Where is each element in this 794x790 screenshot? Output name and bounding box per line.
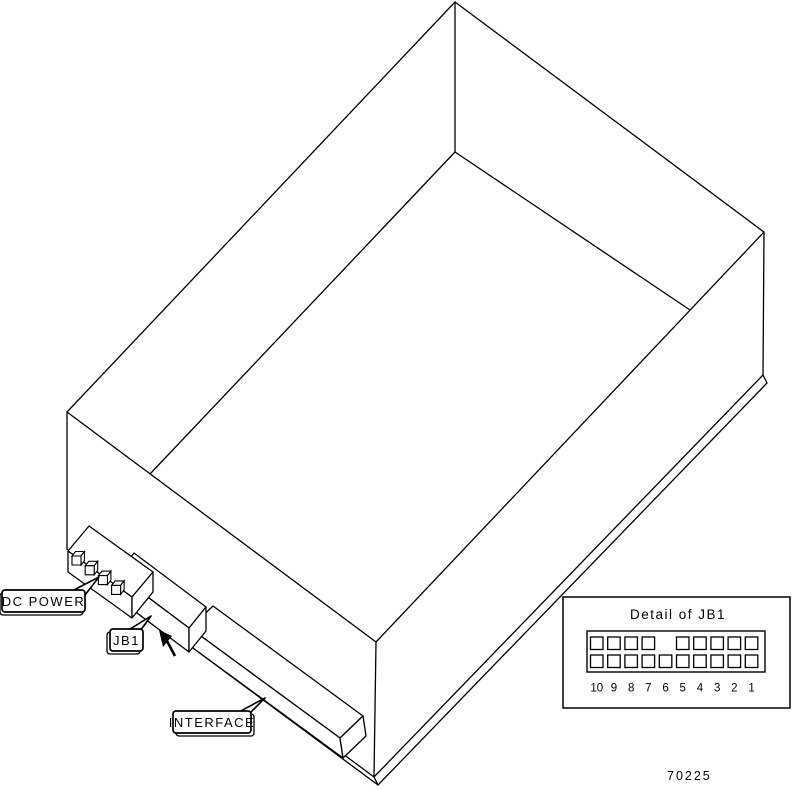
front-right-top-edge — [376, 232, 764, 642]
pin-number: 5 — [680, 683, 686, 695]
right-corner-edge — [763, 232, 764, 375]
figure-number: 70225 — [667, 769, 712, 783]
jumper-pin — [625, 637, 638, 650]
dc-pin — [72, 556, 81, 565]
pin-number: 9 — [611, 683, 617, 695]
jumper-pin — [642, 637, 655, 650]
pin-number: 8 — [628, 683, 634, 695]
jumper-pin — [728, 637, 741, 650]
jb1-detail-inset: Detail of JB1 10987654321 — [563, 597, 790, 708]
manual-figure-page: DC POWER JB1 INTERFACE Detail of JB1 109… — [0, 0, 794, 790]
jumper-pin — [677, 655, 690, 668]
pin-number: 3 — [714, 683, 720, 695]
pin-number: 7 — [645, 683, 651, 695]
callout-jb1: JB1 — [107, 616, 151, 654]
dc-pin — [85, 566, 94, 575]
jumper-pin — [711, 637, 724, 650]
interface-label: INTERFACE — [169, 715, 255, 730]
jumper-pin — [591, 655, 604, 668]
jumper-pin — [694, 655, 707, 668]
pin-number: 4 — [697, 683, 704, 695]
pin-number: 10 — [590, 683, 603, 695]
jumper-pin — [591, 637, 604, 650]
jumper-pin — [608, 655, 621, 668]
pin-number: 1 — [748, 683, 754, 695]
inner-bottom-right-edge — [455, 152, 690, 310]
jb1-label: JB1 — [113, 633, 140, 648]
top-edge-left — [67, 2, 455, 412]
jumper-pin — [625, 655, 638, 668]
jumper-pin — [728, 655, 741, 668]
jumper-pin — [694, 637, 707, 650]
jumper-pin — [642, 655, 655, 668]
inset-title: Detail of JB1 — [630, 607, 726, 622]
front-left-top-edge — [67, 412, 376, 642]
jumper-pin — [608, 637, 621, 650]
arrow-tail — [167, 641, 175, 656]
pin-number: 2 — [731, 683, 737, 695]
bottom-right-lip — [378, 375, 767, 785]
jumper-pin — [711, 655, 724, 668]
inner-bottom-left-edge — [150, 152, 455, 474]
jumper-pin — [745, 637, 758, 650]
callout-interface: INTERFACE — [169, 698, 265, 736]
dc-pin — [112, 585, 121, 594]
bottom-right-edge — [374, 375, 763, 777]
jumper-pin — [659, 655, 672, 668]
jumper-pin — [745, 655, 758, 668]
pin-number: 6 — [662, 683, 668, 695]
top-edge-right — [455, 2, 764, 232]
dc-power-label: DC POWER — [2, 594, 86, 609]
front-corner-edge — [374, 642, 376, 777]
jumper-pin — [677, 637, 690, 650]
isometric-drive-diagram: DC POWER JB1 INTERFACE Detail of JB1 109… — [0, 0, 794, 790]
